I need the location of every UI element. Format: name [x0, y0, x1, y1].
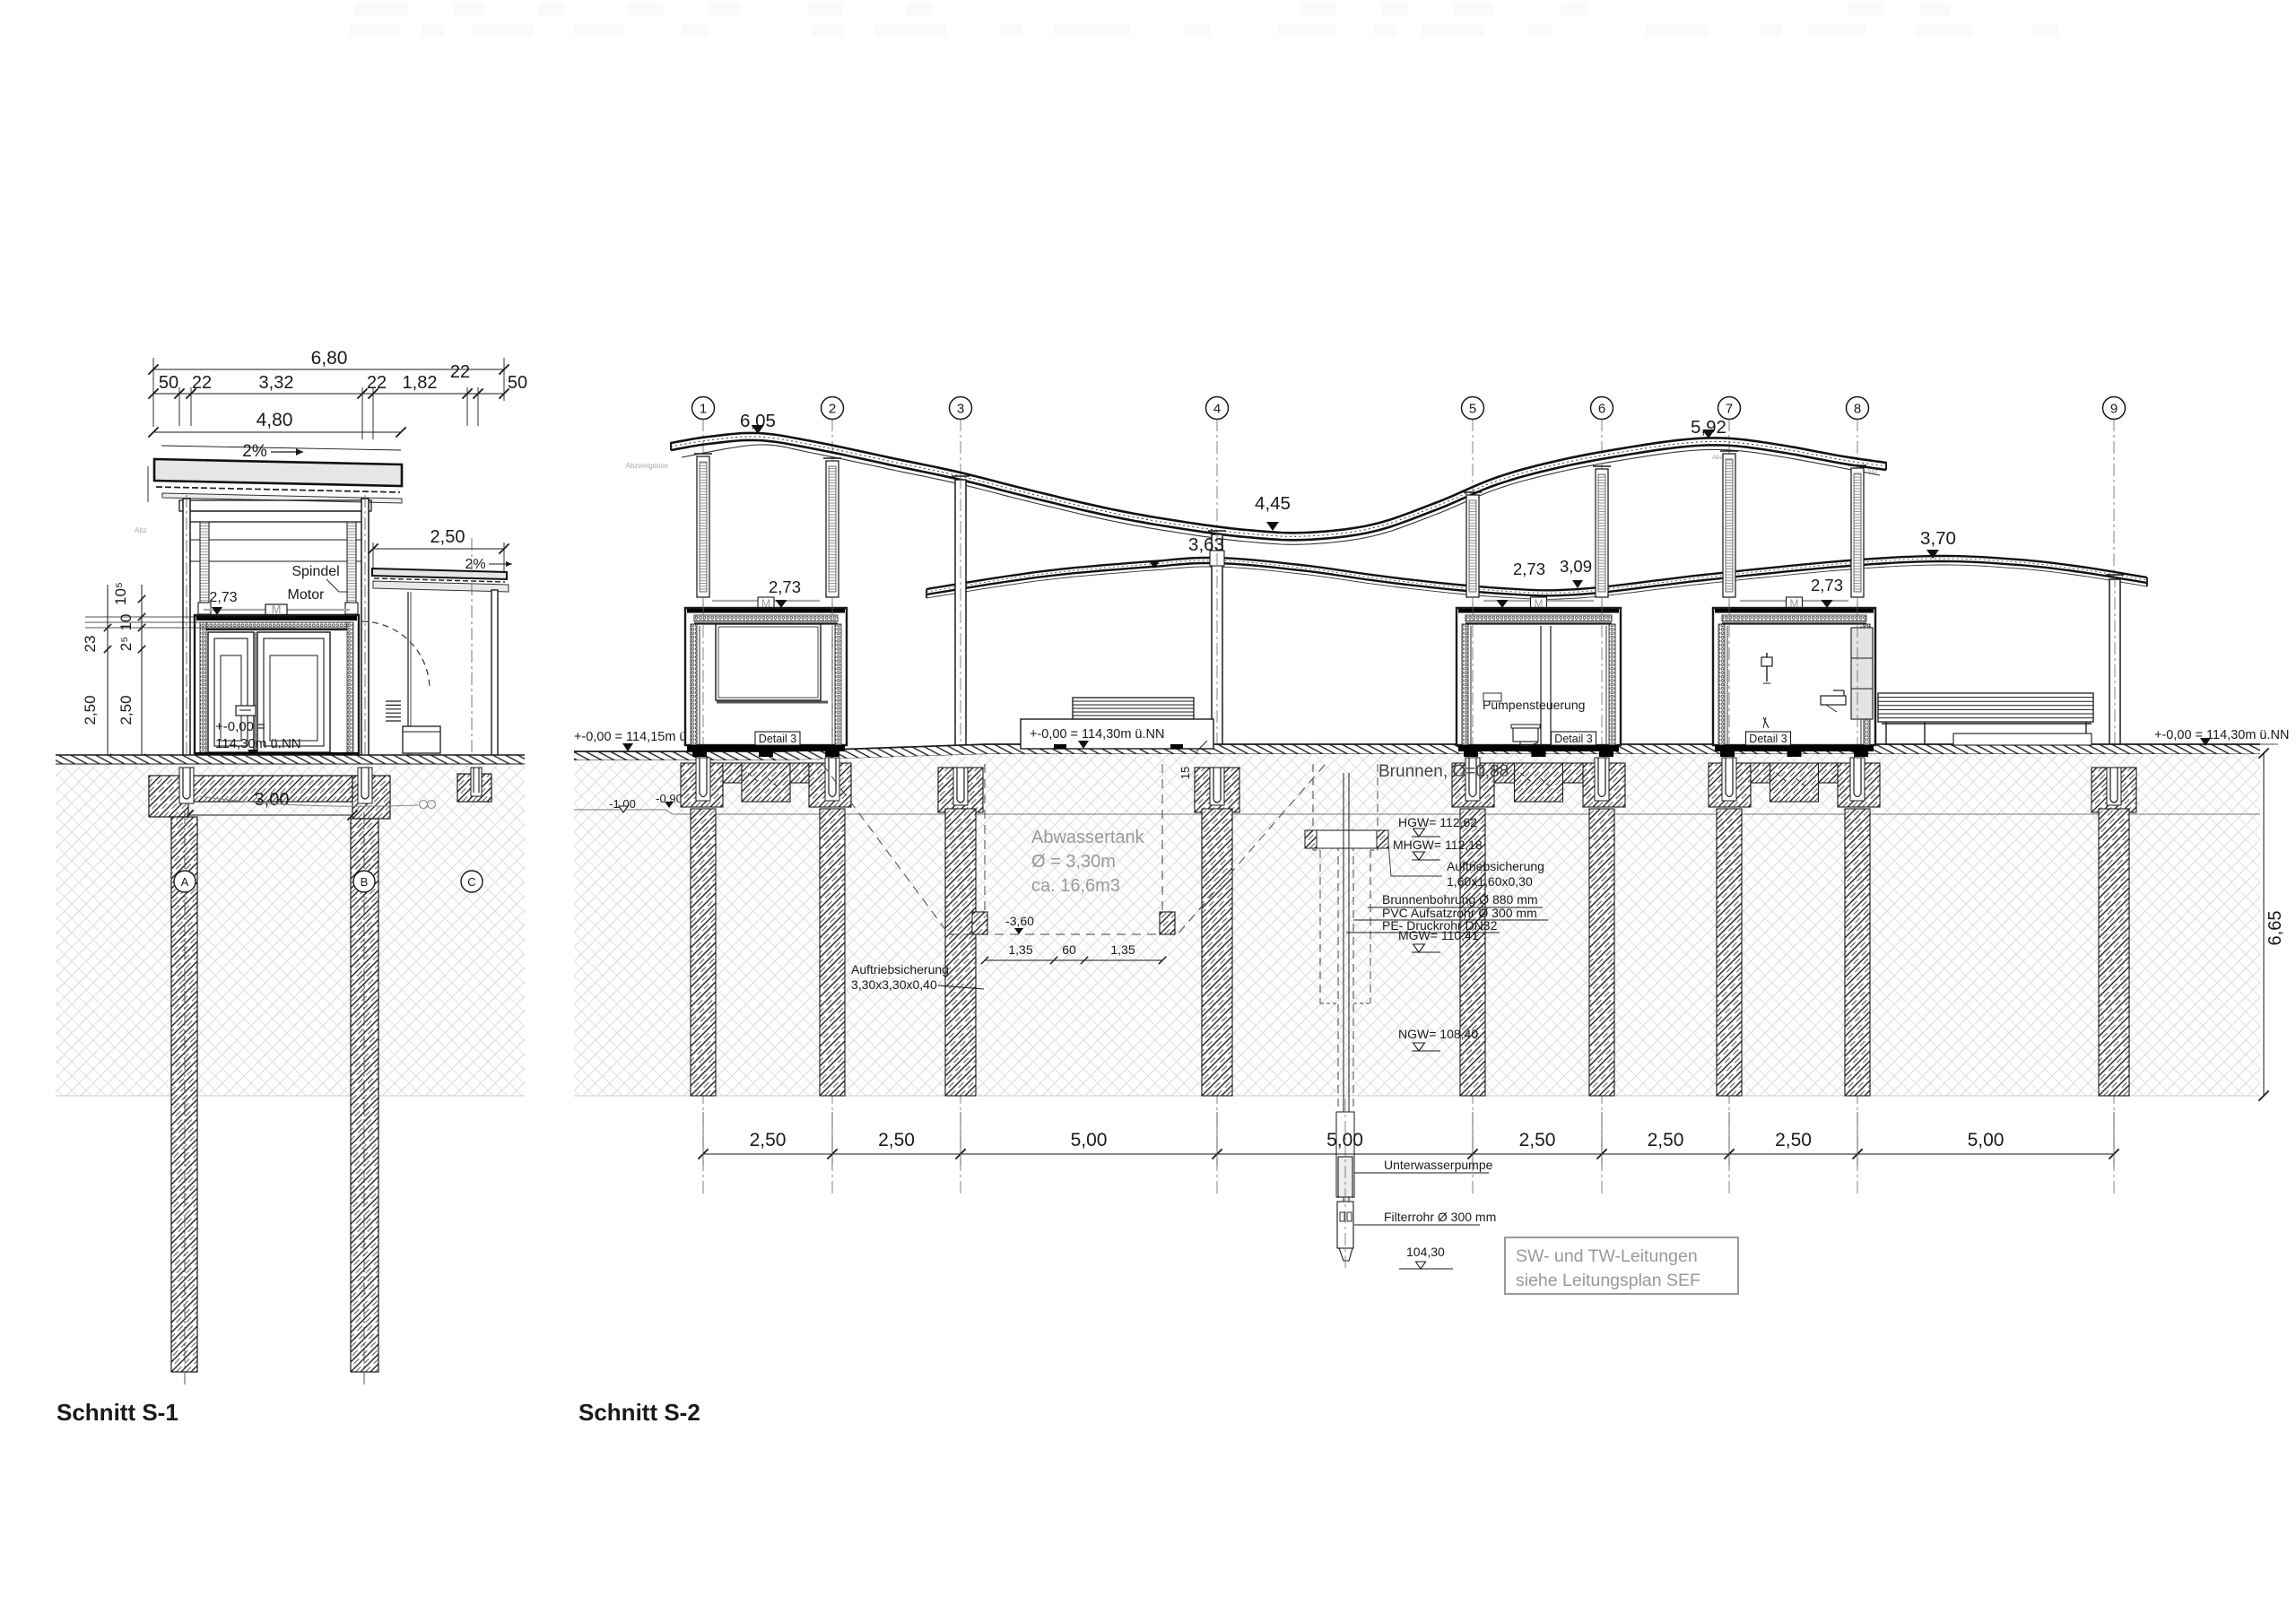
svg-text:3,32: 3,32	[259, 373, 294, 393]
svg-text:A: A	[181, 875, 189, 889]
svg-text:1: 1	[700, 402, 707, 417]
svg-text:2: 2	[829, 402, 836, 417]
svg-text:Auftriebsicherung: Auftriebsicherung	[851, 962, 949, 976]
svg-text:5,00: 5,00	[1326, 1130, 1363, 1150]
svg-text:4,45: 4,45	[1255, 493, 1291, 514]
svg-text:Auftriebsicherung: Auftriebsicherung	[1447, 859, 1544, 873]
svg-text:2,50: 2,50	[117, 695, 135, 725]
svg-text:Abz: Abz	[1867, 469, 1879, 475]
svg-text:HGW= 112,62: HGW= 112,62	[1398, 815, 1477, 829]
svg-text:3,00: 3,00	[255, 790, 290, 810]
svg-text:2⁵: 2⁵	[117, 637, 135, 652]
svg-text:Detail 3: Detail 3	[759, 733, 796, 745]
svg-text:8: 8	[1854, 402, 1861, 417]
svg-text:Pumpensteuerung: Pumpensteuerung	[1483, 698, 1585, 712]
svg-text:22: 22	[450, 362, 470, 382]
svg-text:9: 9	[2110, 402, 2118, 417]
svg-text:22: 22	[367, 373, 387, 393]
svg-text:MGW= 110,41: MGW= 110,41	[1398, 928, 1479, 942]
svg-text:SW- und TW-Leitungen: SW- und TW-Leitungen	[1516, 1246, 1698, 1266]
svg-text:+-0,00 = 114,30m ü.NN: +-0,00 = 114,30m ü.NN	[2154, 728, 2289, 742]
svg-text:22: 22	[192, 373, 212, 393]
svg-text:7: 7	[1726, 402, 1733, 417]
svg-text:10⁵: 10⁵	[112, 582, 129, 605]
svg-text:Brunnen, Ø=0,88: Brunnen, Ø=0,88	[1378, 762, 1509, 781]
svg-text:6: 6	[1598, 402, 1605, 417]
svg-text:6,65: 6,65	[2266, 911, 2285, 946]
svg-text:2,50: 2,50	[1519, 1130, 1556, 1150]
svg-text:Ø = 3,30m: Ø = 3,30m	[1031, 852, 1116, 872]
svg-text:Abzweigdose: Abzweigdose	[625, 462, 668, 470]
svg-text:B: B	[361, 875, 369, 889]
svg-text:2,73: 2,73	[769, 577, 801, 596]
svg-text:Schnitt S-1: Schnitt S-1	[57, 1399, 178, 1426]
svg-text:1,35: 1,35	[1110, 942, 1135, 957]
svg-text:2,50: 2,50	[82, 695, 99, 725]
svg-text:+-0,00 = 114,30m ü.NN: +-0,00 = 114,30m ü.NN	[1030, 727, 1164, 742]
svg-text:C: C	[467, 875, 475, 889]
svg-text:104,30: 104,30	[1406, 1245, 1445, 1259]
svg-text:Abz: Abz	[1712, 455, 1724, 461]
svg-text:Abz: Abz	[135, 526, 147, 534]
svg-text:2,73: 2,73	[209, 590, 237, 605]
svg-text:50: 50	[508, 373, 527, 393]
svg-text:114,30m ü.NN: 114,30m ü.NN	[215, 736, 301, 751]
svg-text:3,70: 3,70	[1920, 528, 1956, 549]
svg-text:3,30x3,30x0,40: 3,30x3,30x0,40	[851, 977, 937, 992]
svg-text:2,50: 2,50	[430, 527, 465, 547]
svg-text:Motor: Motor	[288, 587, 326, 603]
svg-text:MHGW= 112,18: MHGW= 112,18	[1393, 838, 1483, 852]
svg-text:4,80: 4,80	[257, 410, 293, 430]
svg-text:15: 15	[1178, 767, 1192, 779]
svg-text:1,60x1,60x0,30: 1,60x1,60x0,30	[1447, 874, 1533, 889]
svg-text:60: 60	[1062, 942, 1076, 957]
svg-text:6,80: 6,80	[311, 348, 348, 369]
svg-text:3,09: 3,09	[1560, 557, 1592, 576]
svg-text:1,82: 1,82	[403, 373, 438, 393]
svg-text:2%: 2%	[242, 442, 267, 461]
svg-text:2,73: 2,73	[1811, 576, 1843, 595]
svg-text:2,50: 2,50	[1775, 1130, 1812, 1150]
svg-text:+-0,00 =: +-0,00 =	[215, 719, 265, 734]
svg-text:5,00: 5,00	[1968, 1130, 2005, 1150]
svg-text:M: M	[272, 603, 282, 616]
svg-text:Detail 3: Detail 3	[1554, 733, 1592, 745]
svg-text:23: 23	[82, 636, 99, 653]
svg-text:-3,60: -3,60	[1005, 914, 1034, 928]
svg-text:Brunnenbohrung Ø 880 mm: Brunnenbohrung Ø 880 mm	[1382, 892, 1538, 907]
svg-text:1,35: 1,35	[1008, 942, 1032, 957]
svg-text:Abwassertank: Abwassertank	[1031, 828, 1145, 847]
svg-text:Spindel: Spindel	[291, 564, 339, 579]
svg-text:ca. 16,6m3: ca. 16,6m3	[1031, 876, 1120, 896]
svg-text:siehe Leitungsplan SEF: siehe Leitungsplan SEF	[1516, 1271, 1700, 1290]
svg-text:2,50: 2,50	[1648, 1130, 1684, 1150]
svg-text:10: 10	[117, 614, 135, 631]
svg-text:2,50: 2,50	[750, 1130, 787, 1150]
svg-text:5: 5	[1469, 402, 1476, 417]
svg-text:Filterrohr Ø 300 mm: Filterrohr Ø 300 mm	[1384, 1210, 1496, 1224]
svg-text:Schnitt S-2: Schnitt S-2	[578, 1399, 700, 1426]
svg-text:2,73: 2,73	[1513, 560, 1545, 578]
svg-text:NGW= 108,40: NGW= 108,40	[1398, 1027, 1478, 1041]
svg-text:50: 50	[159, 373, 178, 393]
svg-text:3,63: 3,63	[1188, 534, 1224, 555]
svg-text:2%: 2%	[465, 557, 485, 572]
svg-text:Detail 3: Detail 3	[1749, 733, 1787, 745]
svg-text:2,50: 2,50	[878, 1130, 915, 1150]
svg-text:Unterwasserpumpe: Unterwasserpumpe	[1384, 1158, 1493, 1172]
svg-text:4: 4	[1213, 402, 1221, 417]
svg-text:5,00: 5,00	[1071, 1130, 1108, 1150]
svg-text:3: 3	[957, 402, 964, 417]
